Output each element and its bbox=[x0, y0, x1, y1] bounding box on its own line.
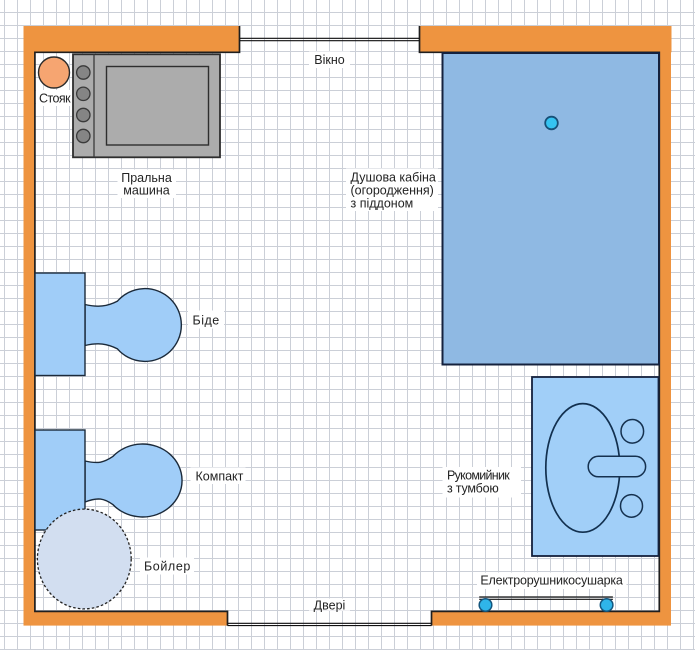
svg-text:з тумбою: з тумбою bbox=[447, 482, 499, 496]
svg-text:Рукомийник: Рукомийник bbox=[447, 468, 510, 482]
svg-text:Стояк: Стояк bbox=[39, 92, 71, 106]
svg-text:Компакт: Компакт bbox=[196, 470, 244, 484]
svg-text:Вікно: Вікно bbox=[314, 53, 344, 67]
svg-text:Двері: Двері bbox=[314, 598, 346, 612]
svg-text:Біде: Біде bbox=[193, 314, 220, 328]
svg-text:з піддоном: з піддоном bbox=[351, 196, 414, 210]
svg-text:Душова кабіна: Душова кабіна bbox=[351, 171, 436, 185]
svg-text:машина: машина bbox=[123, 184, 169, 198]
svg-text:Електрорушникосушарка: Електрорушникосушарка bbox=[480, 574, 623, 588]
svg-text:Бойлер: Бойлер bbox=[144, 560, 191, 574]
